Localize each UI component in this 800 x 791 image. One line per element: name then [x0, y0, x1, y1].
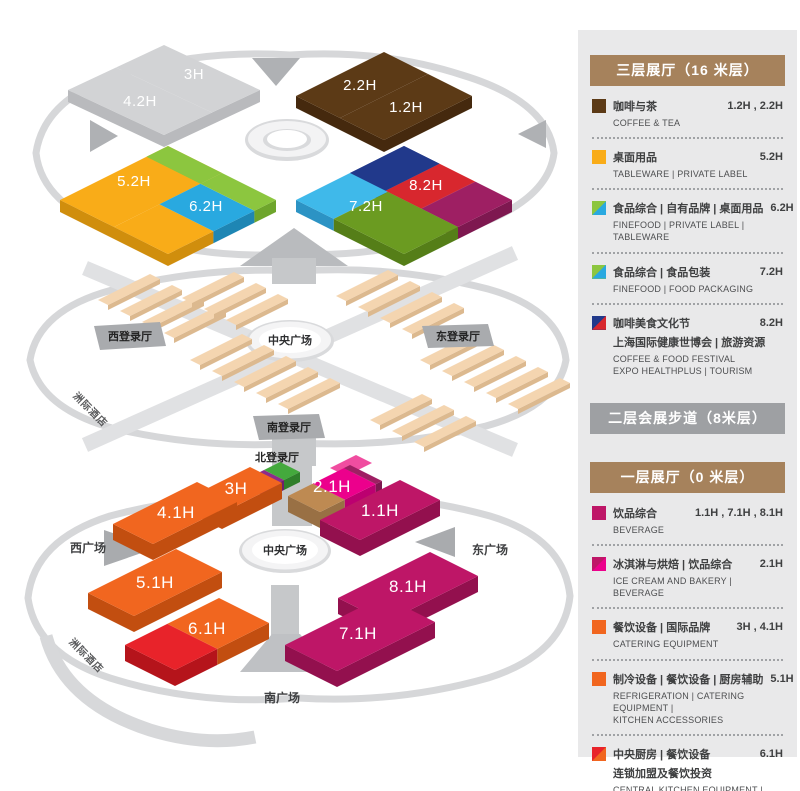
legend-panel: 三层展厅（16 米层） 咖啡与茶 1.2H , 2.2H COFFEE & TE…: [578, 30, 797, 757]
item-halls: 3H , 4.1H: [737, 621, 783, 633]
hall-label-3h-f1: 3H: [225, 479, 248, 498]
item-zh: 饮品综合: [613, 505, 657, 521]
item-zh: 食品综合 | 食品包装: [613, 264, 710, 280]
north-registration-label: 北登录厅: [255, 450, 299, 464]
item-halls: 5.2H: [760, 151, 783, 163]
divider: [592, 734, 783, 736]
hall-label-62h: 6.2H: [189, 198, 223, 215]
south-registration-label: 南登录厅: [267, 420, 311, 434]
hall-label-3h-f3: 3H: [184, 66, 204, 83]
tableware-swatch: [592, 150, 606, 164]
divider: [592, 252, 783, 254]
coffee-tea-swatch: [592, 99, 606, 113]
item-halls: 6.2H: [770, 202, 793, 214]
east-registration-banner: 东登录厅: [422, 324, 494, 348]
item-en: REFRIGERATION | CATERING EQUIPMENT | KIT…: [613, 690, 783, 726]
item-halls: 1.2H , 2.2H: [727, 100, 783, 112]
west-registration-banner: 西登录厅: [94, 322, 166, 350]
item-zh2: 连锁加盟及餐饮投资: [613, 765, 783, 781]
east-registration-label: 东登录厅: [436, 329, 480, 343]
floor-1-south-stem: [271, 585, 299, 637]
item-en: COFFEE & FOOD FESTIVAL EXPO HEALTHPLUS |…: [613, 353, 783, 377]
finefood-packaging-swatch: [592, 265, 606, 279]
hall-label-42h: 4.2H: [123, 93, 157, 110]
hall-label-22h: 2.2H: [343, 77, 377, 94]
item-en: FINEFOOD | PRIVATE LABEL | TABLEWARE: [613, 219, 783, 243]
west-plaza-label: 西广场: [70, 540, 106, 555]
floor-2-north-stem: [272, 262, 316, 284]
legend-floor1-items: 饮品综合 1.1H , 7.1H , 8.1H BEVERAGE 冰淇淋与烘焙 …: [590, 503, 785, 791]
hall-label-21h: 2.1H: [313, 477, 351, 496]
west-registration-label: 西登录厅: [108, 329, 152, 343]
legend-item-central-kitchen: 中央厨房 | 餐饮设备 6.1H 连锁加盟及餐饮投资 CENTRAL KITCH…: [590, 744, 785, 791]
divider: [592, 137, 783, 139]
item-zh: 食品综合 | 自有品牌 | 桌面用品: [613, 200, 763, 216]
hall-label-52h: 5.2H: [117, 173, 151, 190]
item-en: COFFEE & TEA: [613, 117, 783, 129]
icecream-bakery-swatch: [592, 557, 606, 571]
item-halls: 2.1H: [760, 558, 783, 570]
floor-3-center-ring: [245, 119, 329, 161]
legend-item-icecream-bakery: 冰淇淋与烘焙 | 饮品综合 2.1H ICE CREAM AND BAKERY …: [590, 554, 785, 609]
legend-header-floor1: 一层展厅（0 米层）: [590, 462, 785, 493]
legend-item-tableware: 桌面用品 5.2H TABLEWARE | PRIVATE LABEL: [590, 147, 785, 190]
legend-item-refrigeration: 制冷设备 | 餐饮设备 | 厨房辅助 5.1H REFRIGERATION | …: [590, 669, 785, 736]
item-zh: 制冷设备 | 餐饮设备 | 厨房辅助: [613, 671, 763, 687]
item-zh: 咖啡美食文化节: [613, 315, 690, 331]
central-plaza-label-f1: 中央广场: [263, 543, 307, 557]
item-en: CENTRAL KITCHEN EQUIPMENT | CATERING EQU…: [613, 784, 783, 791]
divider: [592, 607, 783, 609]
legend-item-beverage: 饮品综合 1.1H , 7.1H , 8.1H BEVERAGE: [590, 503, 785, 546]
coffee-food-festival-swatch: [592, 316, 606, 330]
finefood-privatelabel-swatch: [592, 201, 606, 215]
hall-label-41h: 4.1H: [157, 503, 195, 522]
floor-1-map: 中央广场 北登录厅 3H 4.1H: [28, 450, 570, 741]
central-kitchen-swatch: [592, 747, 606, 761]
south-registration-banner: 南登录厅: [253, 414, 325, 440]
legend-floor3-items: 咖啡与茶 1.2H , 2.2H COFFEE & TEA 桌面用品 5.2H …: [590, 96, 785, 377]
divider: [592, 659, 783, 661]
central-plaza-label-f2: 中央广场: [268, 333, 312, 347]
item-zh: 中央厨房 | 餐饮设备: [613, 746, 710, 762]
hall-label-12h: 1.2H: [389, 99, 423, 116]
divider: [592, 544, 783, 546]
floor-2-map: 中央广场: [30, 253, 570, 466]
east-plaza-label: 东广场: [472, 542, 508, 557]
item-halls: 7.2H: [760, 266, 783, 278]
item-halls: 6.1H: [760, 748, 783, 760]
hall-label-82h: 8.2H: [409, 177, 443, 194]
item-zh: 餐饮设备 | 国际品牌: [613, 619, 710, 635]
legend-header-floor3: 三层展厅（16 米层）: [590, 55, 785, 86]
item-zh: 冰淇淋与烘焙 | 饮品综合: [613, 556, 732, 572]
item-zh: 咖啡与茶: [613, 98, 657, 114]
beverage-swatch: [592, 506, 606, 520]
hall-label-71h: 7.1H: [339, 624, 377, 643]
south-plaza-label: 南广场: [264, 690, 300, 705]
legend-item-finefood-packaging: 食品综合 | 食品包装 7.2H FINEFOOD | FOOD PACKAGI…: [590, 262, 785, 305]
item-en: CATERING EQUIPMENT: [613, 638, 783, 650]
item-halls: 8.2H: [760, 317, 783, 329]
floor-1-center-ring: 中央广场: [239, 529, 331, 573]
item-en: TABLEWARE | PRIVATE LABEL: [613, 168, 783, 180]
floor-3-map: 3H 4.2H 2.2H 1.2H 5.2H: [36, 45, 554, 294]
hall-label-72h: 7.2H: [349, 198, 383, 215]
item-halls: 1.1H , 7.1H , 8.1H: [695, 507, 783, 519]
item-zh2: 上海国际健康世博会 | 旅游资源: [613, 334, 783, 350]
legend-header-floor2: 二层会展步道（8米层）: [590, 403, 785, 434]
legend-item-coffee-food-festival: 咖啡美食文化节 8.2H 上海国际健康世博会 | 旅游资源 COFFEE & F…: [590, 313, 785, 377]
item-halls: 5.1H: [770, 673, 793, 685]
hall-label-81h: 8.1H: [389, 577, 427, 596]
refrigeration-swatch: [592, 672, 606, 686]
legend-item-finefood-privatelabel: 食品综合 | 自有品牌 | 桌面用品 6.2H FINEFOOD | PRIVA…: [590, 198, 785, 253]
divider: [592, 188, 783, 190]
hall-label-51h: 5.1H: [136, 573, 174, 592]
exhibition-floor-map: 3H 4.2H 2.2H 1.2H 5.2H: [0, 0, 800, 791]
divider: [592, 303, 783, 305]
item-zh: 桌面用品: [613, 149, 657, 165]
hall-label-11h: 1.1H: [361, 501, 399, 520]
item-en: BEVERAGE: [613, 524, 783, 536]
legend-item-catering-equipment: 餐饮设备 | 国际品牌 3H , 4.1H CATERING EQUIPMENT: [590, 617, 785, 660]
hall-label-61h: 6.1H: [188, 619, 226, 638]
legend-item-coffee-tea: 咖啡与茶 1.2H , 2.2H COFFEE & TEA: [590, 96, 785, 139]
item-en: ICE CREAM AND BAKERY | BEVERAGE: [613, 575, 783, 599]
item-en: FINEFOOD | FOOD PACKAGING: [613, 283, 783, 295]
catering-equipment-swatch: [592, 620, 606, 634]
